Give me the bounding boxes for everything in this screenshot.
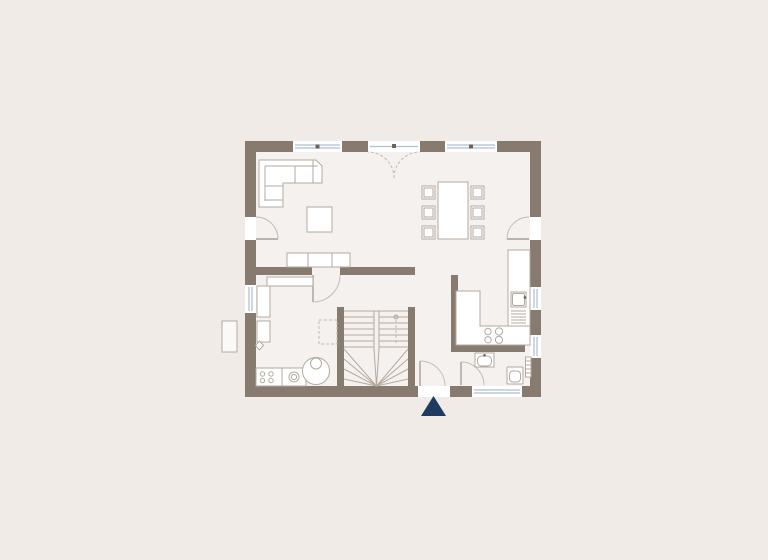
kitchen-counter-right xyxy=(508,250,530,326)
dining-chair xyxy=(422,206,435,219)
wall-kitchen-wc xyxy=(451,345,525,352)
utility-cabinet xyxy=(257,286,270,317)
light-shaft xyxy=(222,321,237,352)
dining-chair xyxy=(471,186,484,199)
window-top-right xyxy=(445,141,497,152)
boiler-tank xyxy=(303,358,330,385)
window-left-utility xyxy=(245,285,256,313)
dining-chair xyxy=(422,226,435,239)
wc-washbasin xyxy=(475,353,494,367)
coffee-table xyxy=(307,207,332,232)
floor-plan-canvas xyxy=(0,0,768,560)
wc-radiator xyxy=(526,357,532,377)
wall-stair-left xyxy=(337,307,344,386)
sideboard xyxy=(287,253,350,267)
window-bottom-wc xyxy=(472,386,522,397)
appliance-dryer xyxy=(256,368,282,386)
dining-table xyxy=(438,182,468,239)
dining-chair xyxy=(471,206,484,219)
dining-chair xyxy=(471,226,484,239)
dining-set xyxy=(422,182,484,239)
window-right-small xyxy=(530,335,541,358)
utility-shelf xyxy=(267,277,313,286)
utility-cabinet xyxy=(257,321,270,342)
dining-chair xyxy=(422,186,435,199)
window-top-left xyxy=(293,141,342,152)
window-right-kitchen xyxy=(530,287,541,310)
floor-plan-drawing xyxy=(0,0,768,560)
wall-left xyxy=(245,152,256,386)
wc-toilet xyxy=(507,367,523,384)
wall-living-utility-right xyxy=(340,267,415,275)
wall-living-utility-left xyxy=(256,267,312,275)
wall-stair-right xyxy=(408,307,415,386)
